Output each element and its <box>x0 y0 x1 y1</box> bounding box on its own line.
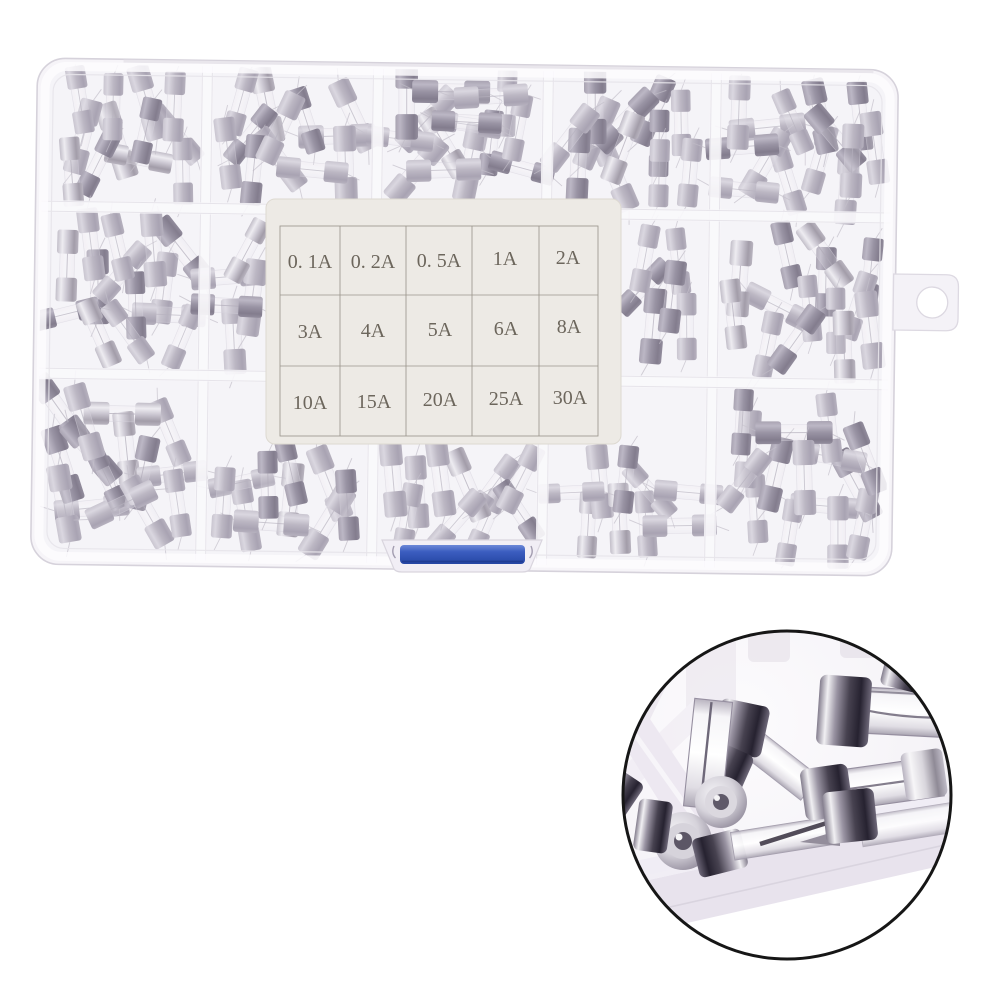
svg-text:20A: 20A <box>423 389 458 411</box>
svg-text:30A: 30A <box>553 387 588 409</box>
svg-text:0. 1A: 0. 1A <box>288 251 333 273</box>
svg-text:0. 5A: 0. 5A <box>417 250 462 272</box>
svg-text:0. 2A: 0. 2A <box>351 251 396 273</box>
svg-text:2A: 2A <box>556 247 581 269</box>
svg-text:15A: 15A <box>357 391 392 413</box>
svg-text:6A: 6A <box>494 318 519 340</box>
svg-text:25A: 25A <box>489 388 524 410</box>
svg-text:8A: 8A <box>557 316 582 338</box>
svg-text:1A: 1A <box>493 248 518 270</box>
svg-text:3A: 3A <box>298 321 323 343</box>
svg-text:10A: 10A <box>293 392 328 414</box>
svg-text:5A: 5A <box>428 319 453 341</box>
svg-text:4A: 4A <box>361 320 386 342</box>
